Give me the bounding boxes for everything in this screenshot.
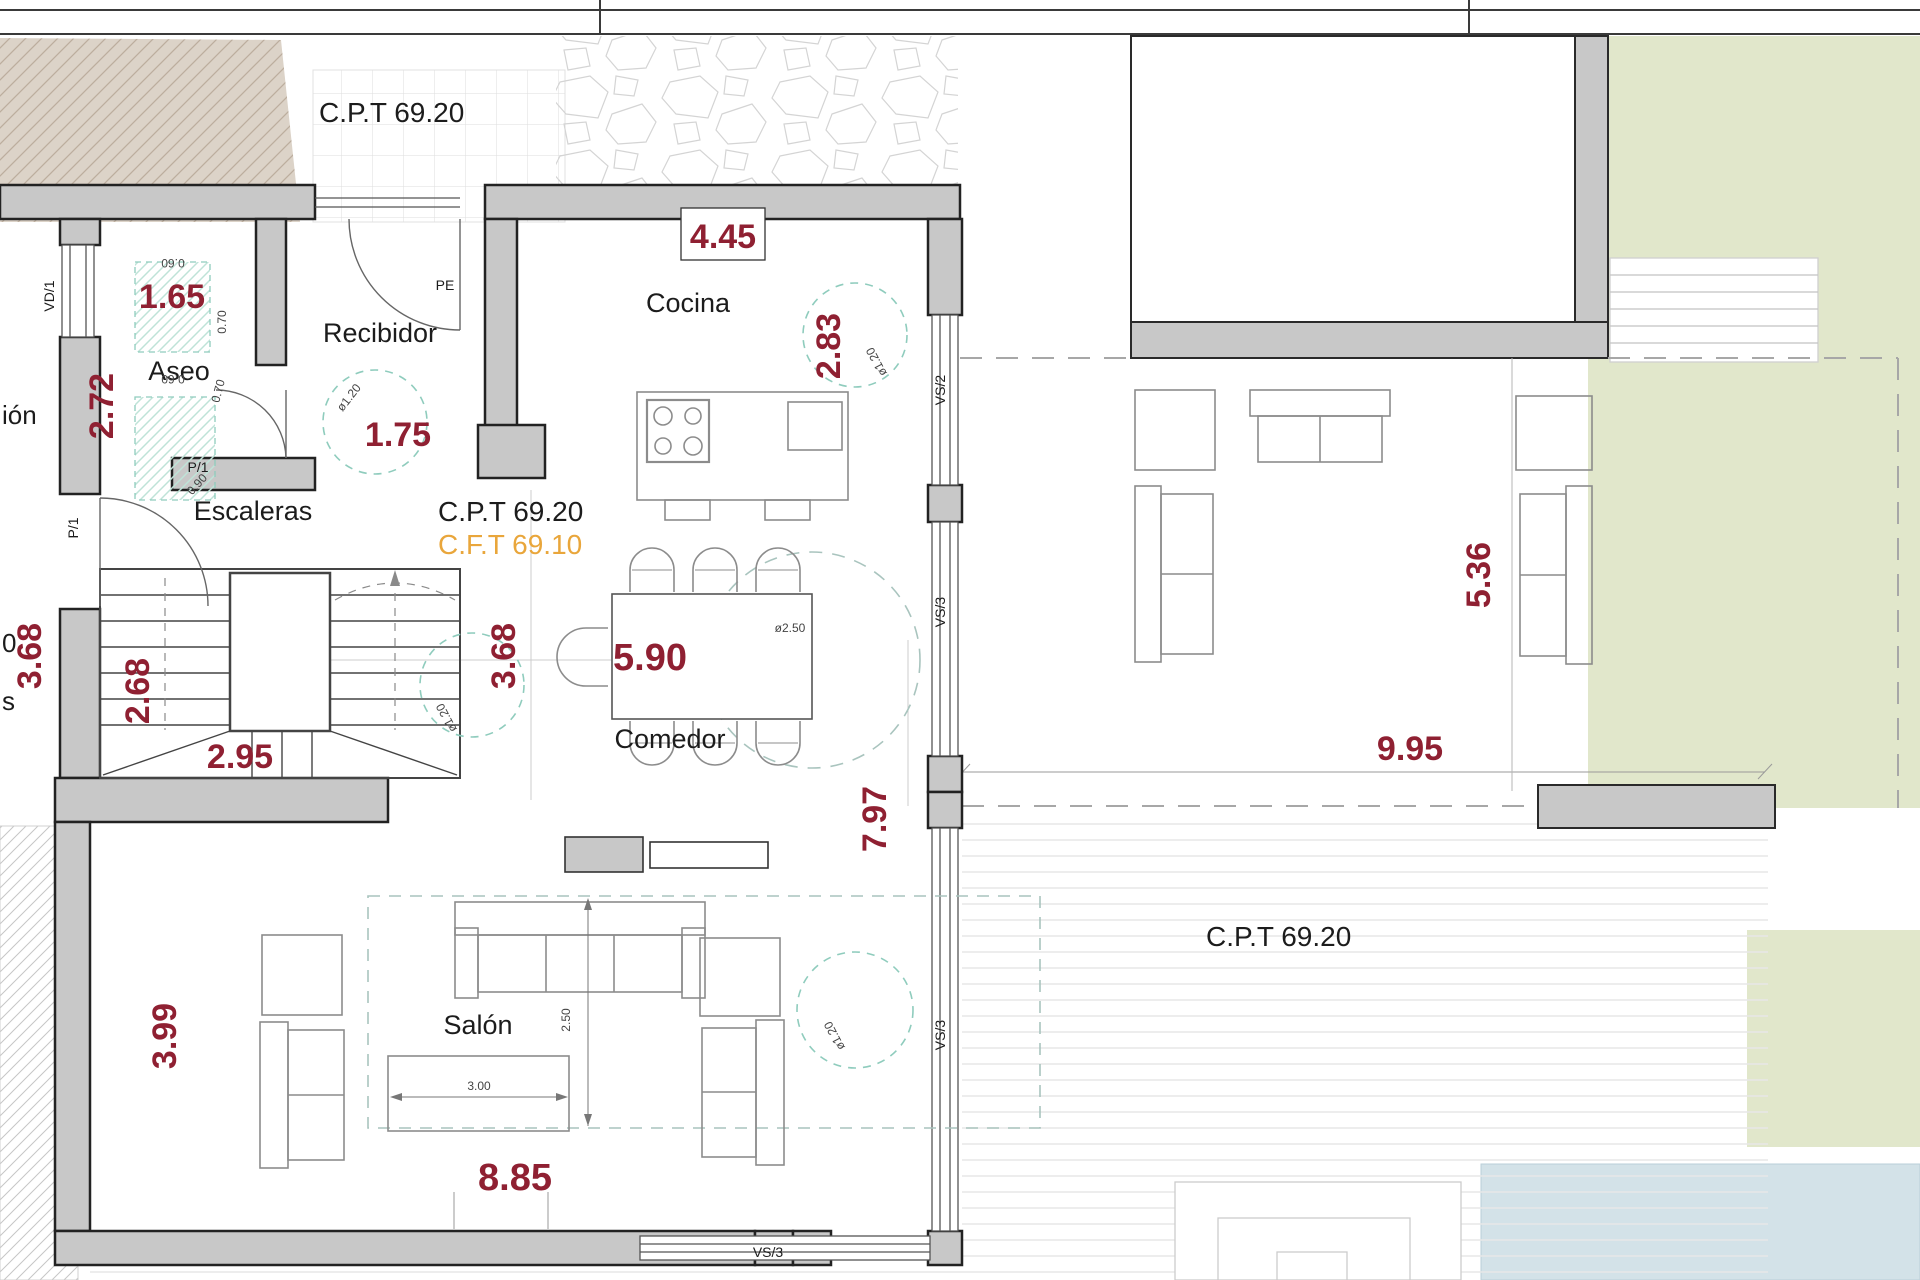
dim-dia-2-50: ø2.50	[775, 621, 806, 635]
upper-right-volume	[1131, 36, 1608, 358]
level-cft-center: C.F.T 69.10	[438, 529, 582, 560]
dim-2-95: 2.95	[207, 738, 273, 776]
garden-steps	[1610, 258, 1818, 362]
opening-vs3-b: VS/3	[932, 1020, 948, 1051]
terrace-furniture	[1135, 390, 1592, 664]
dim-0-60-a: 0.60	[161, 256, 185, 270]
dim-8-85: 8.85	[478, 1157, 552, 1199]
dim-dia-1-20-cocina: ø1.20	[863, 345, 890, 379]
edge-fragment-ion: ión	[2, 400, 37, 430]
opening-pe: PE	[436, 277, 455, 293]
opening-vs2: VS/2	[932, 375, 948, 406]
dim-1-75: 1.75	[365, 416, 431, 454]
floor-plan-page: C.P.T 69.20 C.P.T 69.20 C.F.T 69.10 C.P.…	[0, 0, 1920, 1280]
opening-vd1: VD/1	[41, 280, 57, 311]
room-label-cocina: Cocina	[646, 288, 731, 318]
dim-sofa-2-50: 2.50	[559, 1008, 573, 1032]
dim-1-65: 1.65	[139, 278, 205, 316]
dim-3-99: 3.99	[146, 1003, 184, 1069]
opening-vs3-a: VS/3	[932, 597, 948, 628]
dim-3-68-mid: 3.68	[485, 623, 523, 689]
salon-furniture	[260, 837, 1040, 1168]
dim-dia-1-20-salon: ø1.20	[821, 1019, 848, 1053]
dim-2-83: 2.83	[810, 313, 848, 379]
dim-4-45: 4.45	[690, 218, 756, 256]
opening-p1-a: P/1	[187, 459, 208, 475]
pebble-paving	[556, 36, 958, 186]
room-label-salon: Salón	[443, 1010, 512, 1040]
lawn-upper	[1588, 36, 1920, 808]
level-cpt-terrace: C.P.T 69.20	[1206, 921, 1351, 952]
dim-0-70-b: 0.70	[208, 378, 228, 404]
dim-5-90: 5.90	[613, 637, 687, 679]
lawn-lower	[1747, 930, 1920, 1147]
dim-0-60-b: 0.60	[161, 372, 185, 386]
terrace-low-wall	[1538, 785, 1775, 828]
dim-2-68: 2.68	[119, 658, 157, 724]
kitchen-island	[637, 392, 848, 520]
room-label-escaleras: Escaleras	[194, 496, 313, 526]
level-cpt-top: C.P.T 69.20	[319, 97, 464, 128]
dim-5-36: 5.36	[1460, 542, 1498, 608]
dim-3-68-left: 3.68	[11, 623, 49, 689]
room-label-comedor: Comedor	[614, 724, 725, 754]
opening-vs3-c: VS/3	[753, 1244, 784, 1260]
dim-9-95: 9.95	[1377, 730, 1443, 768]
dim-0-70-a: 0.70	[215, 310, 229, 334]
opening-p1-b: P/1	[65, 517, 81, 538]
floor-plan-svg: C.P.T 69.20 C.P.T 69.20 C.F.T 69.10 C.P.…	[0, 0, 1920, 1280]
room-label-recibidor: Recibidor	[323, 318, 437, 348]
edge-fragment-s: s	[2, 686, 15, 716]
terrace-structures	[1175, 1182, 1461, 1280]
dim-2-72: 2.72	[83, 373, 121, 439]
dim-dia-1-20-recibidor: ø1.20	[334, 381, 364, 414]
level-cpt-center: C.P.T 69.20	[438, 496, 583, 527]
dim-table-3-00: 3.00	[467, 1079, 491, 1093]
dim-7-97: 7.97	[856, 786, 894, 852]
dim-dia-1-20-comedor: ø1.20	[433, 701, 460, 735]
